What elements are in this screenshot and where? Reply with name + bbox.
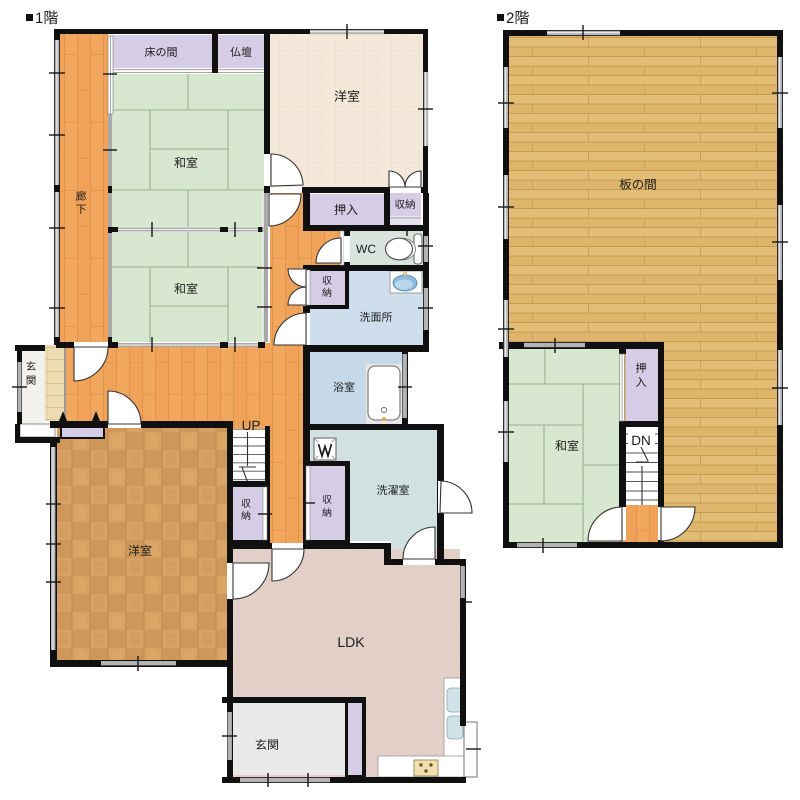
svg-text:入: 入	[636, 376, 647, 389]
svg-text:WC: WC	[356, 242, 376, 256]
svg-text:関: 関	[26, 375, 37, 387]
svg-text:2階: 2階	[506, 10, 529, 27]
svg-text:納: 納	[241, 510, 251, 522]
svg-text:DN: DN	[631, 433, 651, 448]
svg-text:玄関: 玄関	[255, 738, 279, 752]
svg-text:洗面所: 洗面所	[360, 311, 393, 324]
svg-text:1階: 1階	[35, 10, 58, 27]
svg-text:浴室: 浴室	[333, 381, 355, 394]
svg-text:仏壇: 仏壇	[230, 46, 252, 59]
svg-text:玄: 玄	[26, 361, 37, 373]
svg-text:LDK: LDK	[337, 634, 365, 650]
svg-text:納: 納	[322, 287, 332, 299]
svg-text:板の間: 板の間	[619, 178, 657, 192]
svg-text:下: 下	[76, 204, 87, 216]
svg-text:和室: 和室	[174, 156, 198, 170]
svg-text:和室: 和室	[555, 439, 579, 453]
svg-text:収: 収	[322, 275, 332, 287]
svg-text:UP: UP	[242, 418, 261, 433]
svg-text:洗濯室: 洗濯室	[377, 484, 410, 497]
svg-text:和室: 和室	[174, 282, 198, 296]
svg-text:納: 納	[322, 507, 332, 519]
svg-text:押: 押	[636, 362, 647, 375]
svg-text:洋室: 洋室	[128, 544, 152, 558]
svg-text:収: 収	[322, 494, 332, 506]
svg-text:廊: 廊	[76, 190, 87, 203]
svg-text:床の間: 床の間	[145, 46, 178, 59]
svg-text:収納: 収納	[395, 199, 416, 211]
svg-text:収: 収	[241, 498, 251, 510]
svg-text:押入: 押入	[334, 203, 358, 217]
svg-text:洋室: 洋室	[334, 89, 360, 104]
